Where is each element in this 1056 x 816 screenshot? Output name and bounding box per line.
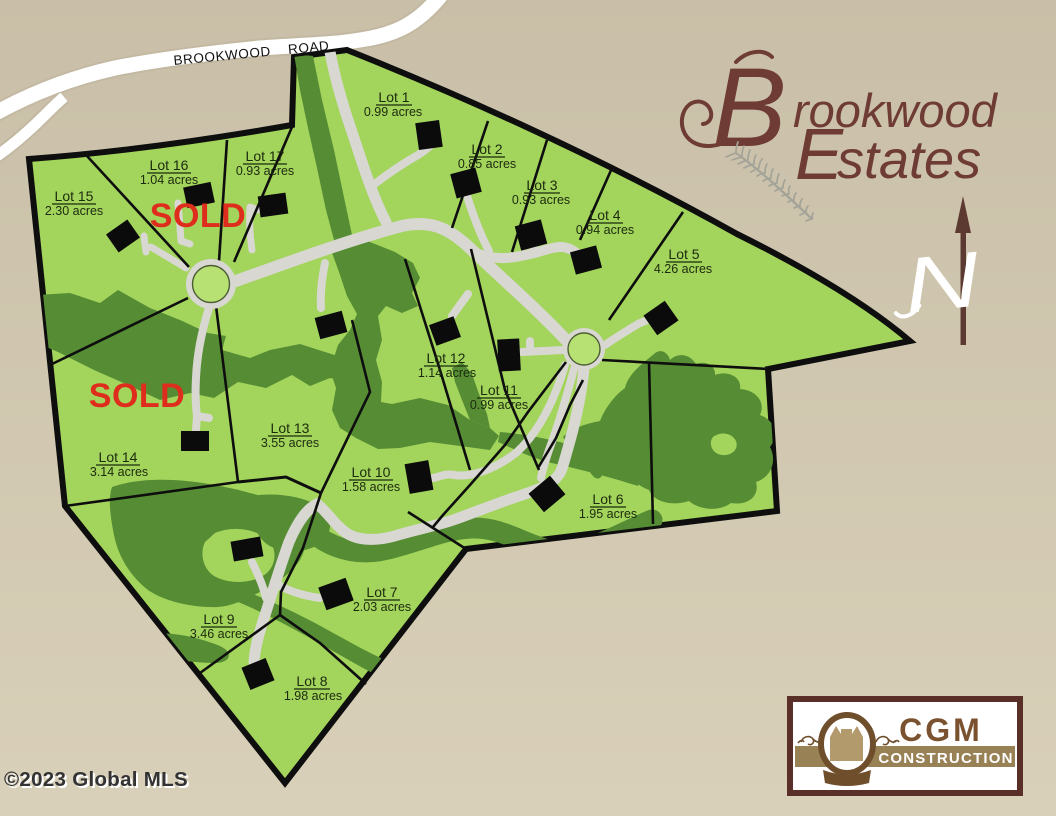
svg-text:Lot 9: Lot 9 (203, 611, 234, 627)
svg-text:©2023 Global MLS: ©2023 Global MLS (4, 768, 188, 791)
svg-text:1.04 acres: 1.04 acres (140, 173, 198, 187)
svg-text:Lot 12: Lot 12 (427, 350, 466, 366)
svg-text:1.14 acres: 1.14 acres (418, 366, 476, 380)
svg-text:0.93 acres: 0.93 acres (512, 193, 570, 207)
svg-text:4.26 acres: 4.26 acres (654, 262, 712, 276)
svg-text:Lot 14: Lot 14 (99, 449, 138, 465)
svg-text:Lot 13: Lot 13 (271, 420, 310, 436)
svg-text:0.99 acres: 0.99 acres (364, 105, 422, 119)
svg-text:0.85 acres: 0.85 acres (458, 157, 516, 171)
svg-text:Lot 7: Lot 7 (366, 584, 397, 600)
svg-text:Lot 4: Lot 4 (589, 207, 620, 223)
svg-text:1.98 acres: 1.98 acres (284, 689, 342, 703)
svg-text:3.14 acres: 3.14 acres (90, 465, 148, 479)
svg-text:CONSTRUCTION: CONSTRUCTION (878, 750, 1013, 767)
svg-text:Lot 15: Lot 15 (55, 188, 94, 204)
svg-text:Lot 6: Lot 6 (592, 491, 623, 507)
svg-text:CGM: CGM (899, 712, 983, 748)
svg-text:Lot 2: Lot 2 (471, 141, 502, 157)
svg-text:Lot 5: Lot 5 (668, 246, 699, 262)
svg-text:1.58 acres: 1.58 acres (342, 480, 400, 494)
svg-text:0.94 acres: 0.94 acres (576, 223, 634, 237)
svg-text:3.55 acres: 3.55 acres (261, 436, 319, 450)
svg-text:Lot 16: Lot 16 (150, 157, 189, 173)
svg-text:2.03 acres: 2.03 acres (353, 600, 411, 614)
svg-text:Lot 3: Lot 3 (526, 177, 557, 193)
svg-text:SOLD: SOLD (89, 377, 185, 415)
svg-text:SOLD: SOLD (150, 197, 246, 235)
svg-text:Lot 10: Lot 10 (352, 464, 391, 480)
svg-text:Lot 17: Lot 17 (246, 148, 285, 164)
svg-text:Lot 1: Lot 1 (378, 89, 409, 105)
svg-text:0.99 acres: 0.99 acres (470, 398, 528, 412)
svg-text:Lot 8: Lot 8 (296, 673, 327, 689)
svg-text:3.46 acres: 3.46 acres (190, 627, 248, 641)
svg-text:1.95 acres: 1.95 acres (579, 507, 637, 521)
svg-text:0.93 acres: 0.93 acres (236, 164, 294, 178)
svg-text:states: states (837, 130, 981, 190)
svg-text:2.30 acres: 2.30 acres (45, 204, 103, 218)
svg-text:Lot 11: Lot 11 (480, 382, 518, 398)
